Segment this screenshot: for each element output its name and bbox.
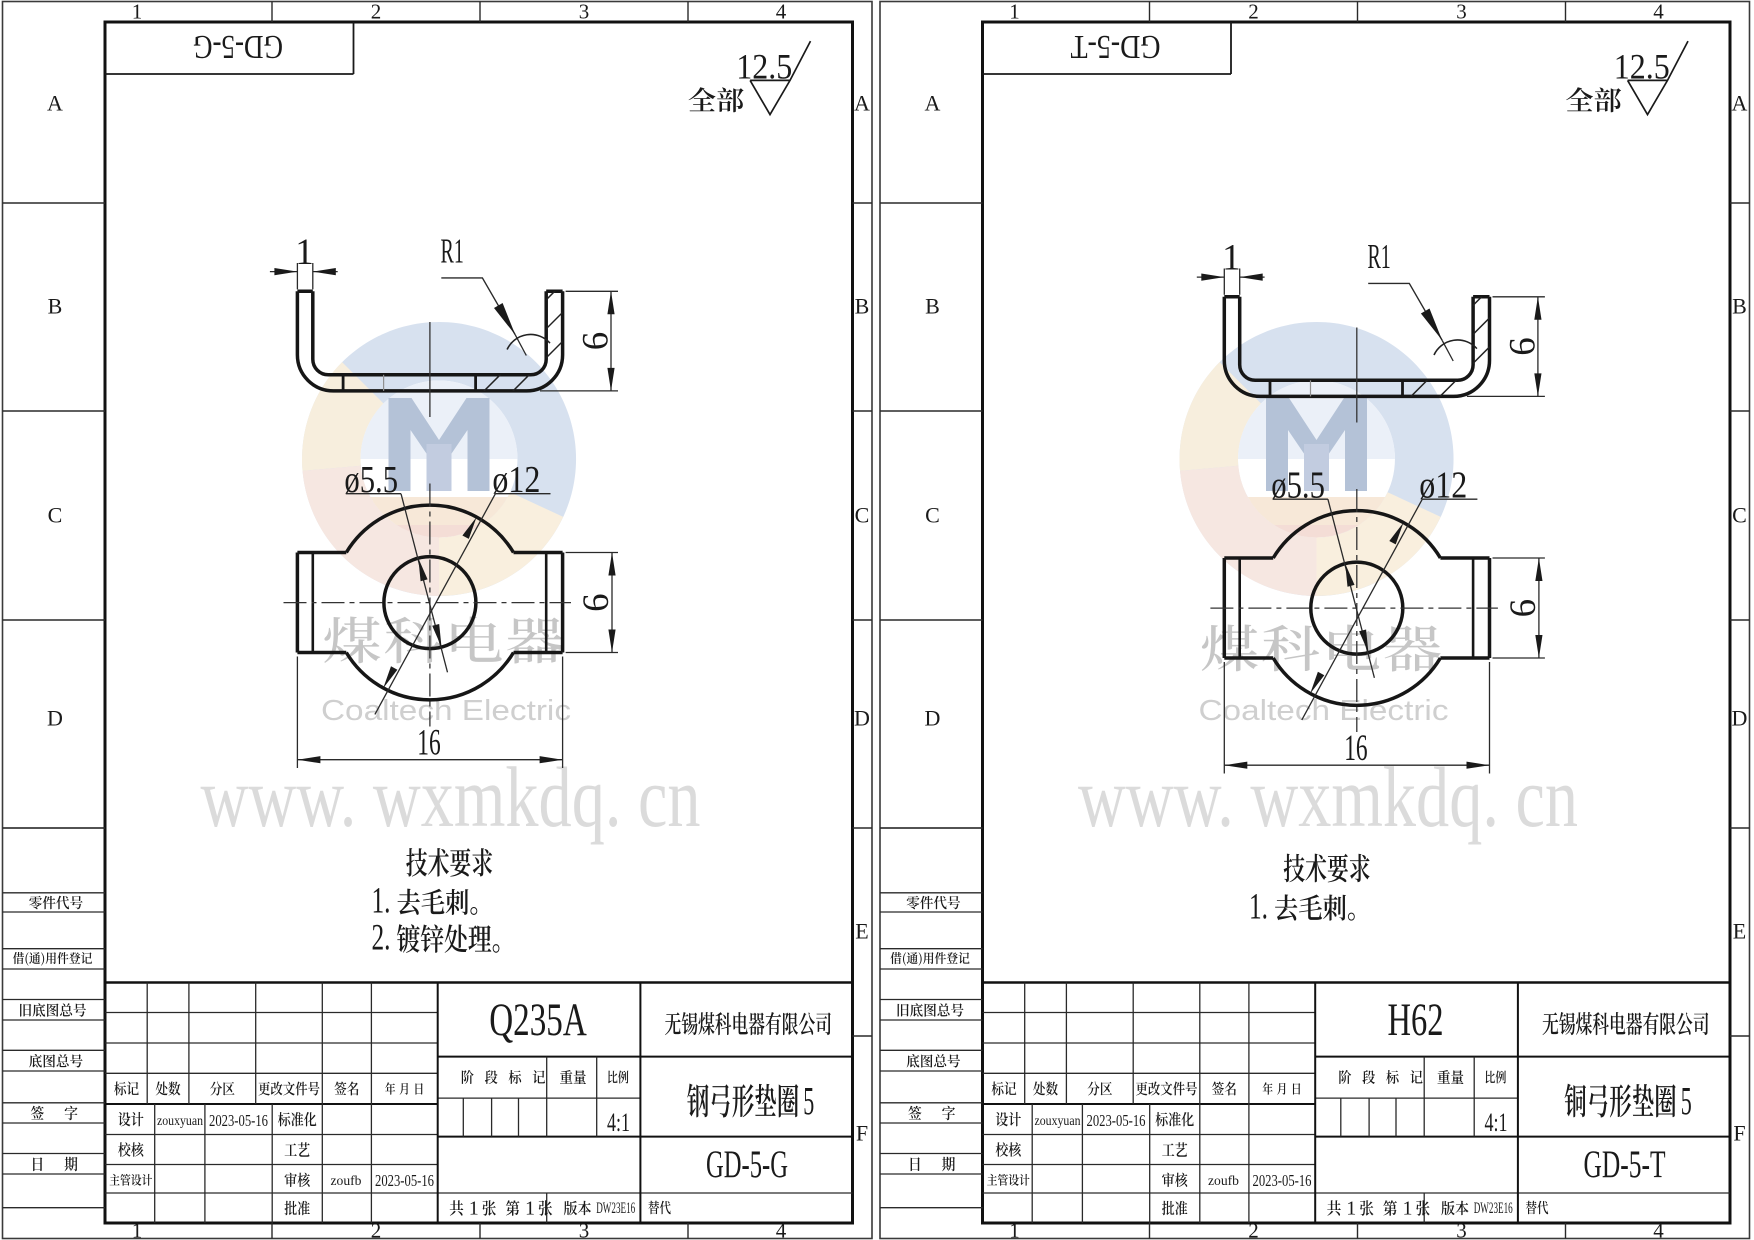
svg-text:4: 4 [1653, 0, 1664, 24]
svg-text:F: F [856, 1121, 868, 1146]
svg-text:zoufb: zoufb [1208, 1173, 1239, 1188]
svg-text:4: 4 [776, 1219, 787, 1240]
svg-text:3: 3 [579, 1219, 590, 1240]
svg-text:C: C [855, 503, 870, 528]
svg-text:2023-05-16: 2023-05-16 [1087, 1111, 1146, 1130]
svg-text:1: 1 [132, 1219, 143, 1240]
svg-text:GD-5-T: GD-5-T [1070, 28, 1160, 65]
svg-text:H62: H62 [1388, 994, 1444, 1046]
svg-text:A: A [925, 91, 941, 116]
svg-text:E: E [1733, 919, 1746, 944]
svg-text:3: 3 [579, 0, 590, 24]
svg-text:ø5.5: ø5.5 [344, 459, 398, 501]
svg-text:6: 6 [576, 593, 617, 612]
svg-text:D: D [1732, 706, 1748, 731]
svg-text:DW23E16: DW23E16 [596, 1200, 635, 1217]
svg-text:GD-5-T: GD-5-T [1584, 1142, 1666, 1186]
svg-text:1: 1 [1403, 1197, 1413, 1219]
svg-text:1: 1 [132, 0, 143, 24]
svg-text:1: 1 [1222, 238, 1241, 279]
svg-text:1.: 1. [372, 881, 391, 922]
svg-text:1.: 1. [1249, 886, 1268, 927]
svg-text:2: 2 [1248, 0, 1259, 24]
svg-text:16: 16 [417, 723, 440, 764]
svg-text:2023-05-16: 2023-05-16 [1253, 1171, 1312, 1190]
svg-text:B: B [1732, 294, 1747, 319]
svg-text:DW23E16: DW23E16 [1474, 1200, 1513, 1217]
svg-text:6: 6 [576, 332, 617, 351]
svg-text:1: 1 [1009, 1219, 1020, 1240]
svg-text:2023-05-16: 2023-05-16 [209, 1111, 268, 1130]
svg-text:4: 4 [1653, 1219, 1664, 1240]
svg-text:2: 2 [1248, 1219, 1259, 1240]
svg-text:zouxyuan: zouxyuan [1035, 1113, 1081, 1128]
svg-text:3: 3 [1456, 1219, 1467, 1240]
svg-text:5: 5 [1681, 1078, 1692, 1123]
svg-text:4: 4 [776, 0, 787, 24]
svg-text:GD-5-G: GD-5-G [193, 28, 283, 65]
svg-text:5: 5 [803, 1078, 814, 1123]
svg-text:ø5.5: ø5.5 [1271, 465, 1325, 507]
svg-text:2.: 2. [372, 917, 391, 958]
svg-text:C: C [48, 503, 63, 528]
svg-text:A: A [1732, 91, 1748, 116]
svg-text:1: 1 [1009, 0, 1020, 24]
svg-text:F: F [1733, 1121, 1745, 1146]
svg-text:www. wxmkdq. cn: www. wxmkdq. cn [1078, 749, 1578, 845]
svg-text:A: A [854, 91, 870, 116]
svg-text:3: 3 [1456, 0, 1467, 24]
svg-text:ø12: ø12 [492, 459, 540, 501]
svg-text:B: B [855, 294, 870, 319]
svg-text:B: B [925, 294, 940, 319]
svg-text:4:1: 4:1 [607, 1107, 630, 1137]
svg-text:C: C [925, 503, 940, 528]
svg-text:D: D [47, 706, 63, 731]
svg-text:A: A [47, 91, 63, 116]
svg-text:GD-5-G: GD-5-G [706, 1142, 788, 1186]
svg-text:1: 1 [469, 1197, 479, 1219]
svg-text:R1: R1 [441, 232, 464, 271]
svg-text:R1: R1 [1367, 237, 1390, 276]
svg-text:16: 16 [1344, 728, 1367, 769]
svg-text:C: C [1732, 503, 1747, 528]
svg-text:1: 1 [295, 232, 314, 273]
svg-text:www. wxmkdq. cn: www. wxmkdq. cn [201, 749, 701, 845]
svg-text:2023-05-16: 2023-05-16 [375, 1171, 434, 1190]
svg-text:6: 6 [1503, 599, 1544, 618]
svg-text:2: 2 [371, 1219, 382, 1240]
svg-text:6: 6 [1502, 337, 1543, 356]
svg-text:D: D [925, 706, 941, 731]
svg-text:1: 1 [525, 1197, 535, 1219]
svg-text:E: E [855, 919, 868, 944]
svg-text:zoufb: zoufb [331, 1173, 362, 1188]
svg-text:1: 1 [1346, 1197, 1356, 1219]
svg-text:B: B [48, 294, 63, 319]
svg-text:ø12: ø12 [1419, 465, 1467, 507]
svg-text:zouxyuan: zouxyuan [157, 1113, 203, 1128]
svg-text:Q235A: Q235A [489, 994, 587, 1046]
svg-text:2: 2 [371, 0, 382, 24]
svg-text:D: D [854, 706, 870, 731]
svg-text:4:1: 4:1 [1485, 1107, 1508, 1137]
